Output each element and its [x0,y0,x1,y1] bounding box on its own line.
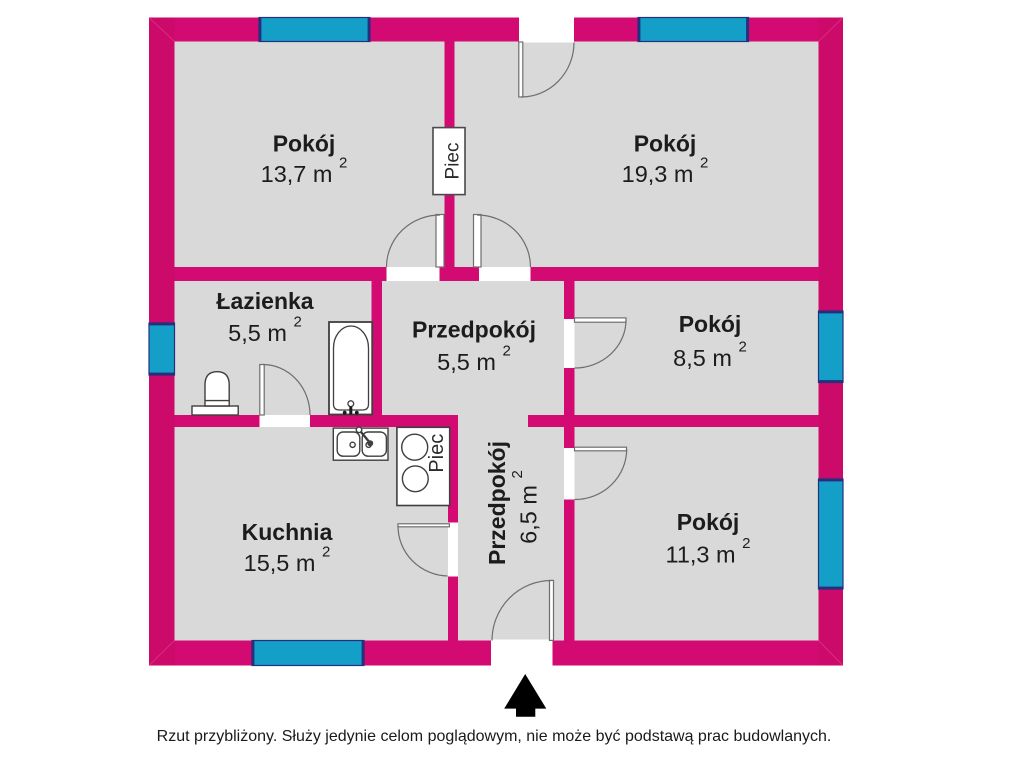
svg-text:Piec: Piec [426,434,448,473]
svg-text:Kuchnia: Kuchnia [242,519,333,545]
svg-text:Pokój: Pokój [677,509,740,535]
svg-text:Pokój: Pokój [634,131,697,157]
svg-text:Piec: Piec [443,143,464,180]
svg-text:Rzut przybliżony. Służy jedyni: Rzut przybliżony. Służy jedynie celom po… [157,728,832,745]
svg-text:Pokój: Pokój [273,131,336,157]
svg-text:Przedpokój: Przedpokój [412,317,536,343]
svg-text:Pokój: Pokój [679,311,742,337]
svg-text:Przedpokój: Przedpokój [484,441,510,565]
svg-text:Łazienka: Łazienka [216,288,313,314]
